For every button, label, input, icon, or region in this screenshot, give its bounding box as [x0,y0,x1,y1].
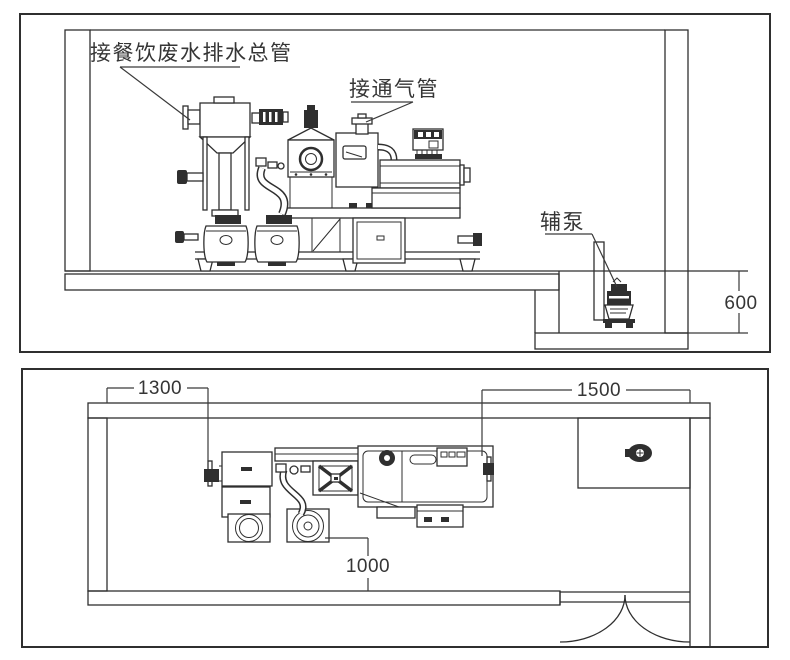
pump-discharge-pipe [594,242,604,320]
inlet-hopper [183,97,250,210]
control-panel [413,129,443,159]
elevation-panel: 600 [20,14,770,352]
separator-machine-plan [204,446,494,542]
brick-wall-left-elevation [65,30,90,271]
brick-wall-bottom-plan [88,591,560,605]
plan-cabinet [417,505,463,527]
separator-vessel [288,105,334,208]
waste-barrel-left [204,215,248,266]
aux-pump-elevation [603,278,635,328]
plan-hopper [313,461,358,495]
waste-barrel-right [255,215,299,266]
vessel-motor [304,110,318,128]
floor-brick-strip [65,274,559,290]
brick-wall-left-plan [88,418,107,591]
vent-pipe-label: 接通气管 [349,78,439,101]
brick-wall-right-elevation [665,30,688,333]
vent-pipe [356,123,368,134]
pit-depth-dimension-lines: 600 [688,271,758,333]
left-offset-dimension: 1300 [138,378,182,399]
horizontal-tank [372,160,470,208]
front-clearance-dimension: 1000 [346,556,390,577]
brick-wall-top-plan [88,403,710,418]
left-offset-dimension-lines: 1300 [107,378,208,461]
aux-pump-plan [625,444,652,462]
brick-wall-right-plan [690,418,710,647]
plan-tank-block [358,446,493,507]
pit-depth-dimension: 600 [724,293,757,314]
plan-inlet-connection [204,461,222,486]
right-offset-dimension: 1500 [577,380,621,401]
front-clearance-dimension-lines: 1000 [325,538,390,591]
pit-floor-brick-strip [535,333,688,349]
vent-unit [336,114,378,187]
double-door [560,591,690,642]
aux-pump-label: 辅泵 [540,211,585,234]
technical-drawing: 600 [0,0,790,660]
plan-panel: 1300 1500 1000 [22,369,768,647]
separator-machine-elevation [175,97,482,271]
aux-pump-leader-line [545,234,617,287]
inlet-main-pipe-label: 接餐饮废水排水总管 [90,42,293,65]
drawing-canvas: 600 [0,0,790,660]
